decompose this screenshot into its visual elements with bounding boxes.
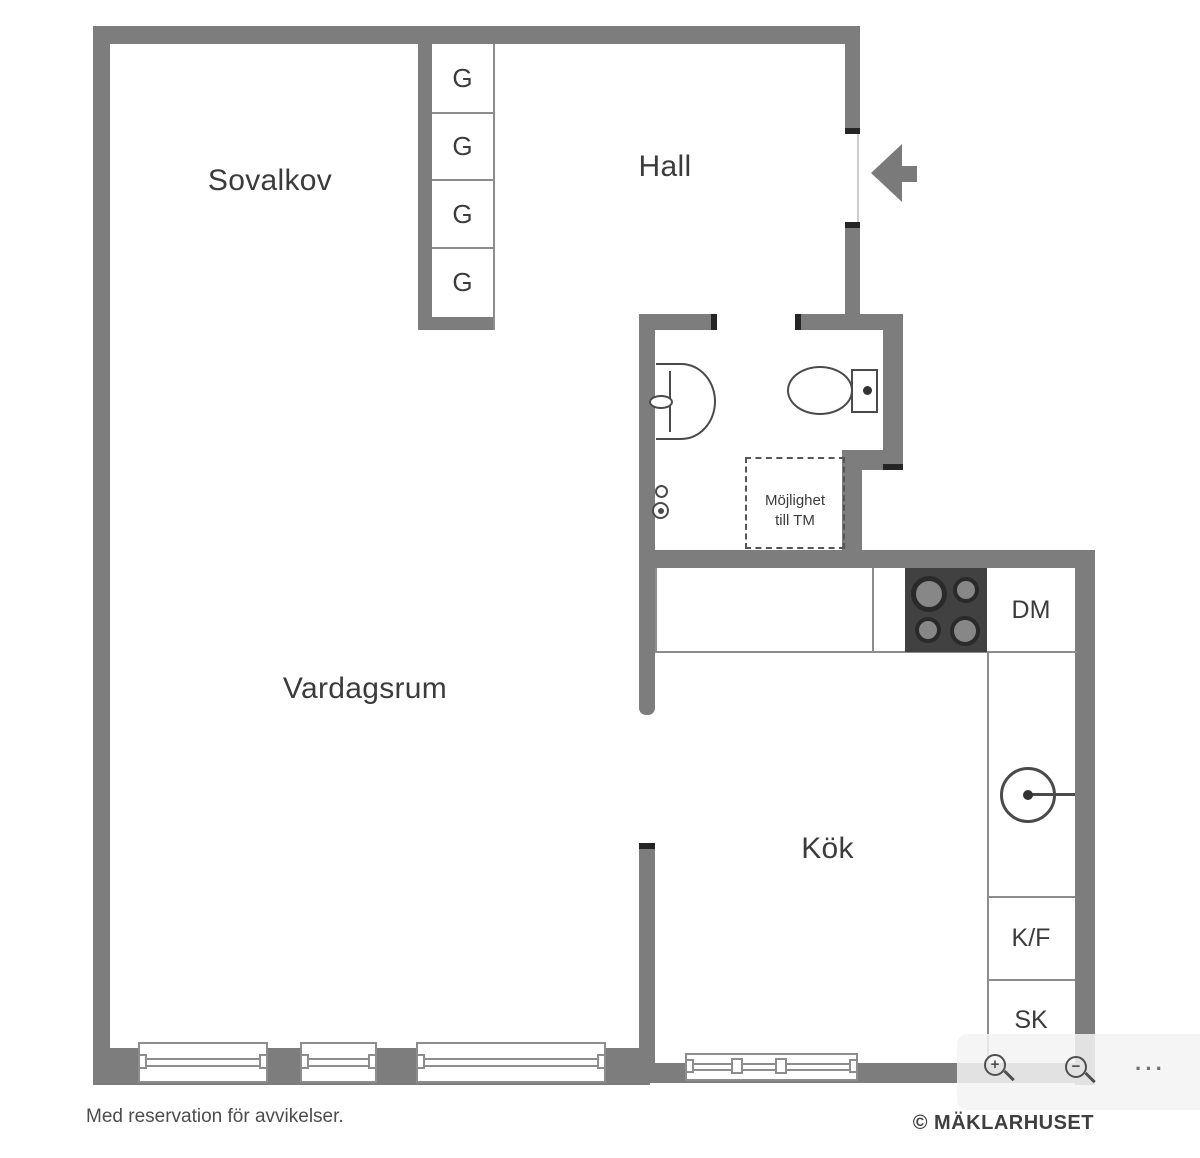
- wall-top: [93, 26, 860, 44]
- floorplan-page: G G G G Möjlighet till TM DM K/F SK: [0, 0, 1200, 1158]
- burner-icon: [953, 577, 979, 603]
- fridge-freezer-label: K/F: [987, 898, 1075, 978]
- wall-divider-lower: [639, 843, 655, 1063]
- dishwasher-label: DM: [987, 568, 1075, 652]
- kitchen-sink-line: [1028, 793, 1075, 796]
- zoom-in-handle: [1003, 1070, 1014, 1081]
- wall-closet-cap: [418, 317, 495, 330]
- wardrobe-label-3: G: [432, 181, 493, 247]
- faucet-icon: [649, 395, 673, 409]
- wall-entry-upper: [845, 44, 860, 134]
- wc-door-jamb-left: [711, 314, 717, 330]
- map-controls-overlay: + − ···: [957, 1034, 1200, 1110]
- wall-kitchen-east: [1075, 550, 1095, 1085]
- floor-drain-icon: [655, 485, 668, 498]
- laundry-label-line2: till TM: [747, 511, 843, 531]
- burner-icon: [915, 617, 941, 643]
- zoom-out-button[interactable]: −: [1065, 1056, 1099, 1090]
- window-symbol-kitchen: [685, 1053, 858, 1081]
- window-symbol-2: [300, 1042, 377, 1083]
- wall-kitchen-north: [639, 550, 1095, 568]
- zoom-in-icon: +: [984, 1054, 1006, 1076]
- toilet-flush-dot: [863, 386, 872, 395]
- entry-arrow-tail: [901, 166, 917, 182]
- wall-wc-east: [883, 330, 903, 470]
- wall-hall-south: [795, 314, 903, 330]
- entry-jamb-upper: [845, 128, 860, 134]
- kitchen-sink-dot: [1023, 790, 1033, 800]
- wall-step-vertical: [842, 450, 862, 554]
- wc-east-cap: [883, 464, 903, 470]
- wardrobe-label-1: G: [432, 45, 493, 111]
- room-label-sovalkov: Sovalkov: [160, 164, 380, 198]
- burner-icon: [950, 616, 980, 646]
- room-label-hall: Hall: [600, 150, 730, 184]
- room-label-kok: Kök: [765, 832, 890, 866]
- entry-threshold-line: [857, 134, 859, 222]
- counter-left-line: [655, 568, 657, 653]
- disclaimer-text: Med reservation för avvikelser.: [86, 1106, 506, 1128]
- entry-jamb-lower: [845, 222, 860, 228]
- window-symbol-1: [138, 1042, 268, 1083]
- wc-door-jamb-right: [795, 314, 801, 330]
- counter-division-line: [872, 568, 874, 652]
- washing-machine-area: Möjlighet till TM: [745, 457, 845, 549]
- wardrobe-label-4: G: [432, 249, 493, 315]
- wall-closet-west: [418, 44, 432, 330]
- wardrobe-label-2: G: [432, 113, 493, 179]
- more-options-icon[interactable]: ···: [1135, 1056, 1166, 1082]
- zoom-in-button[interactable]: +: [984, 1054, 1018, 1088]
- zoom-out-icon: −: [1065, 1056, 1087, 1078]
- floor-drain-dot: [658, 508, 664, 514]
- laundry-label-line1: Möjlighet: [747, 491, 843, 511]
- toilet-bowl-icon: [787, 366, 853, 415]
- copyright-text: © MÄKLARHUSET: [880, 1112, 1094, 1135]
- entry-arrow-icon: [871, 144, 902, 202]
- wall-left: [93, 26, 110, 1085]
- closet-front-line: [493, 44, 495, 330]
- divider-lower-cap: [639, 843, 655, 849]
- burner-icon: [911, 576, 947, 612]
- zoom-out-handle: [1084, 1072, 1095, 1083]
- room-label-vardagsrum: Vardagsrum: [240, 672, 490, 706]
- stove-icon: [905, 568, 987, 652]
- window-symbol-3: [416, 1042, 606, 1083]
